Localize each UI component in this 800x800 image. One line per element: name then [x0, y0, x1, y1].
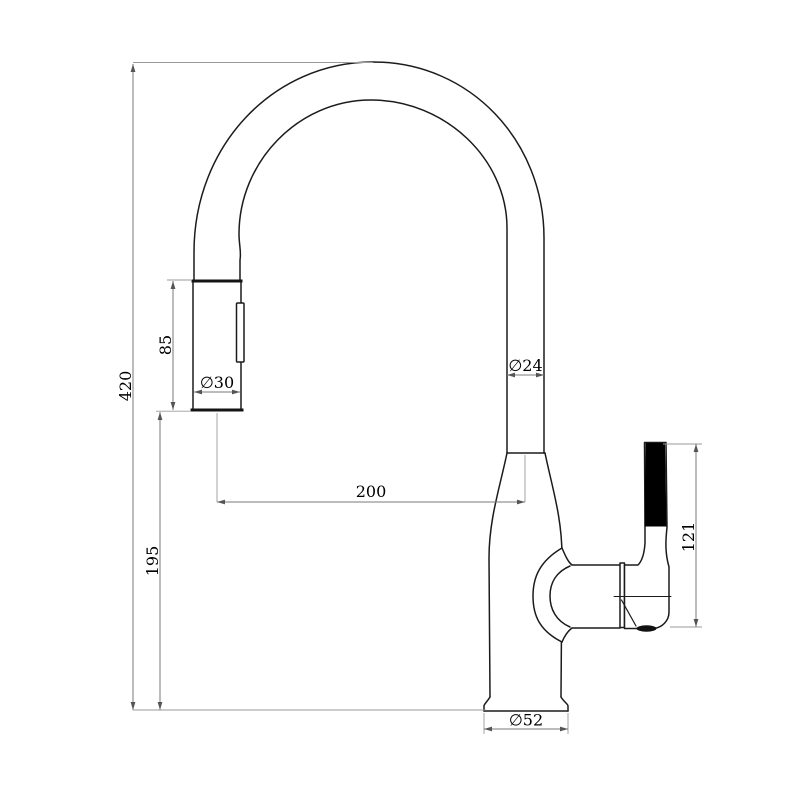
dim-label-spray-head-diameter: ∅30	[200, 373, 234, 392]
dim-label-spray-head-length: 85	[156, 335, 175, 355]
dim-52-arrow-right	[560, 727, 568, 732]
technical-drawing-page: 420 85 195 ∅30 ∅24 200 121 ∅52	[0, 0, 800, 800]
dim-195-arrow-bottom	[158, 702, 163, 710]
faucet-outline	[191, 62, 672, 711]
dim-121-arrow-bottom	[694, 619, 699, 627]
dim-label-head-to-base-height: 195	[143, 546, 162, 577]
dim-label-handle-length: 121	[679, 522, 698, 553]
dim-label-base-diameter: ∅52	[509, 711, 543, 730]
handle-grip-black	[645, 443, 667, 527]
dim-420-arrow-top	[131, 64, 136, 72]
dim-121-arrow-top	[694, 444, 699, 452]
dim-85-arrow-bottom	[171, 402, 176, 410]
body-left-edge	[489, 453, 507, 697]
dim-label-spout-tube-diameter: ∅24	[508, 356, 542, 375]
dim-52-arrow-left	[484, 727, 492, 732]
dim-label-overall-height: 420	[116, 371, 135, 402]
dimension-labels: 420 85 195 ∅30 ∅24 200 121 ∅52	[116, 335, 698, 730]
faucet-technical-drawing: 420 85 195 ∅30 ∅24 200 121 ∅52	[0, 0, 800, 800]
gooseneck-inner-curve	[239, 100, 507, 453]
dim-label-spout-reach: 200	[356, 482, 387, 501]
base-flare-right	[561, 697, 568, 711]
gooseneck-outer-curve	[194, 62, 544, 453]
dim-420-arrow-bottom	[131, 702, 136, 710]
dimension-graphics	[131, 63, 702, 735]
dim-195-arrow-top	[158, 412, 163, 420]
valve-outlet-oval	[637, 625, 657, 631]
base-flare-left	[484, 697, 490, 711]
spray-head-button	[237, 303, 245, 362]
dim-85-arrow-top	[171, 281, 176, 289]
dim-200-arrow-left	[217, 500, 225, 505]
dim-200-arrow-right	[517, 500, 525, 505]
